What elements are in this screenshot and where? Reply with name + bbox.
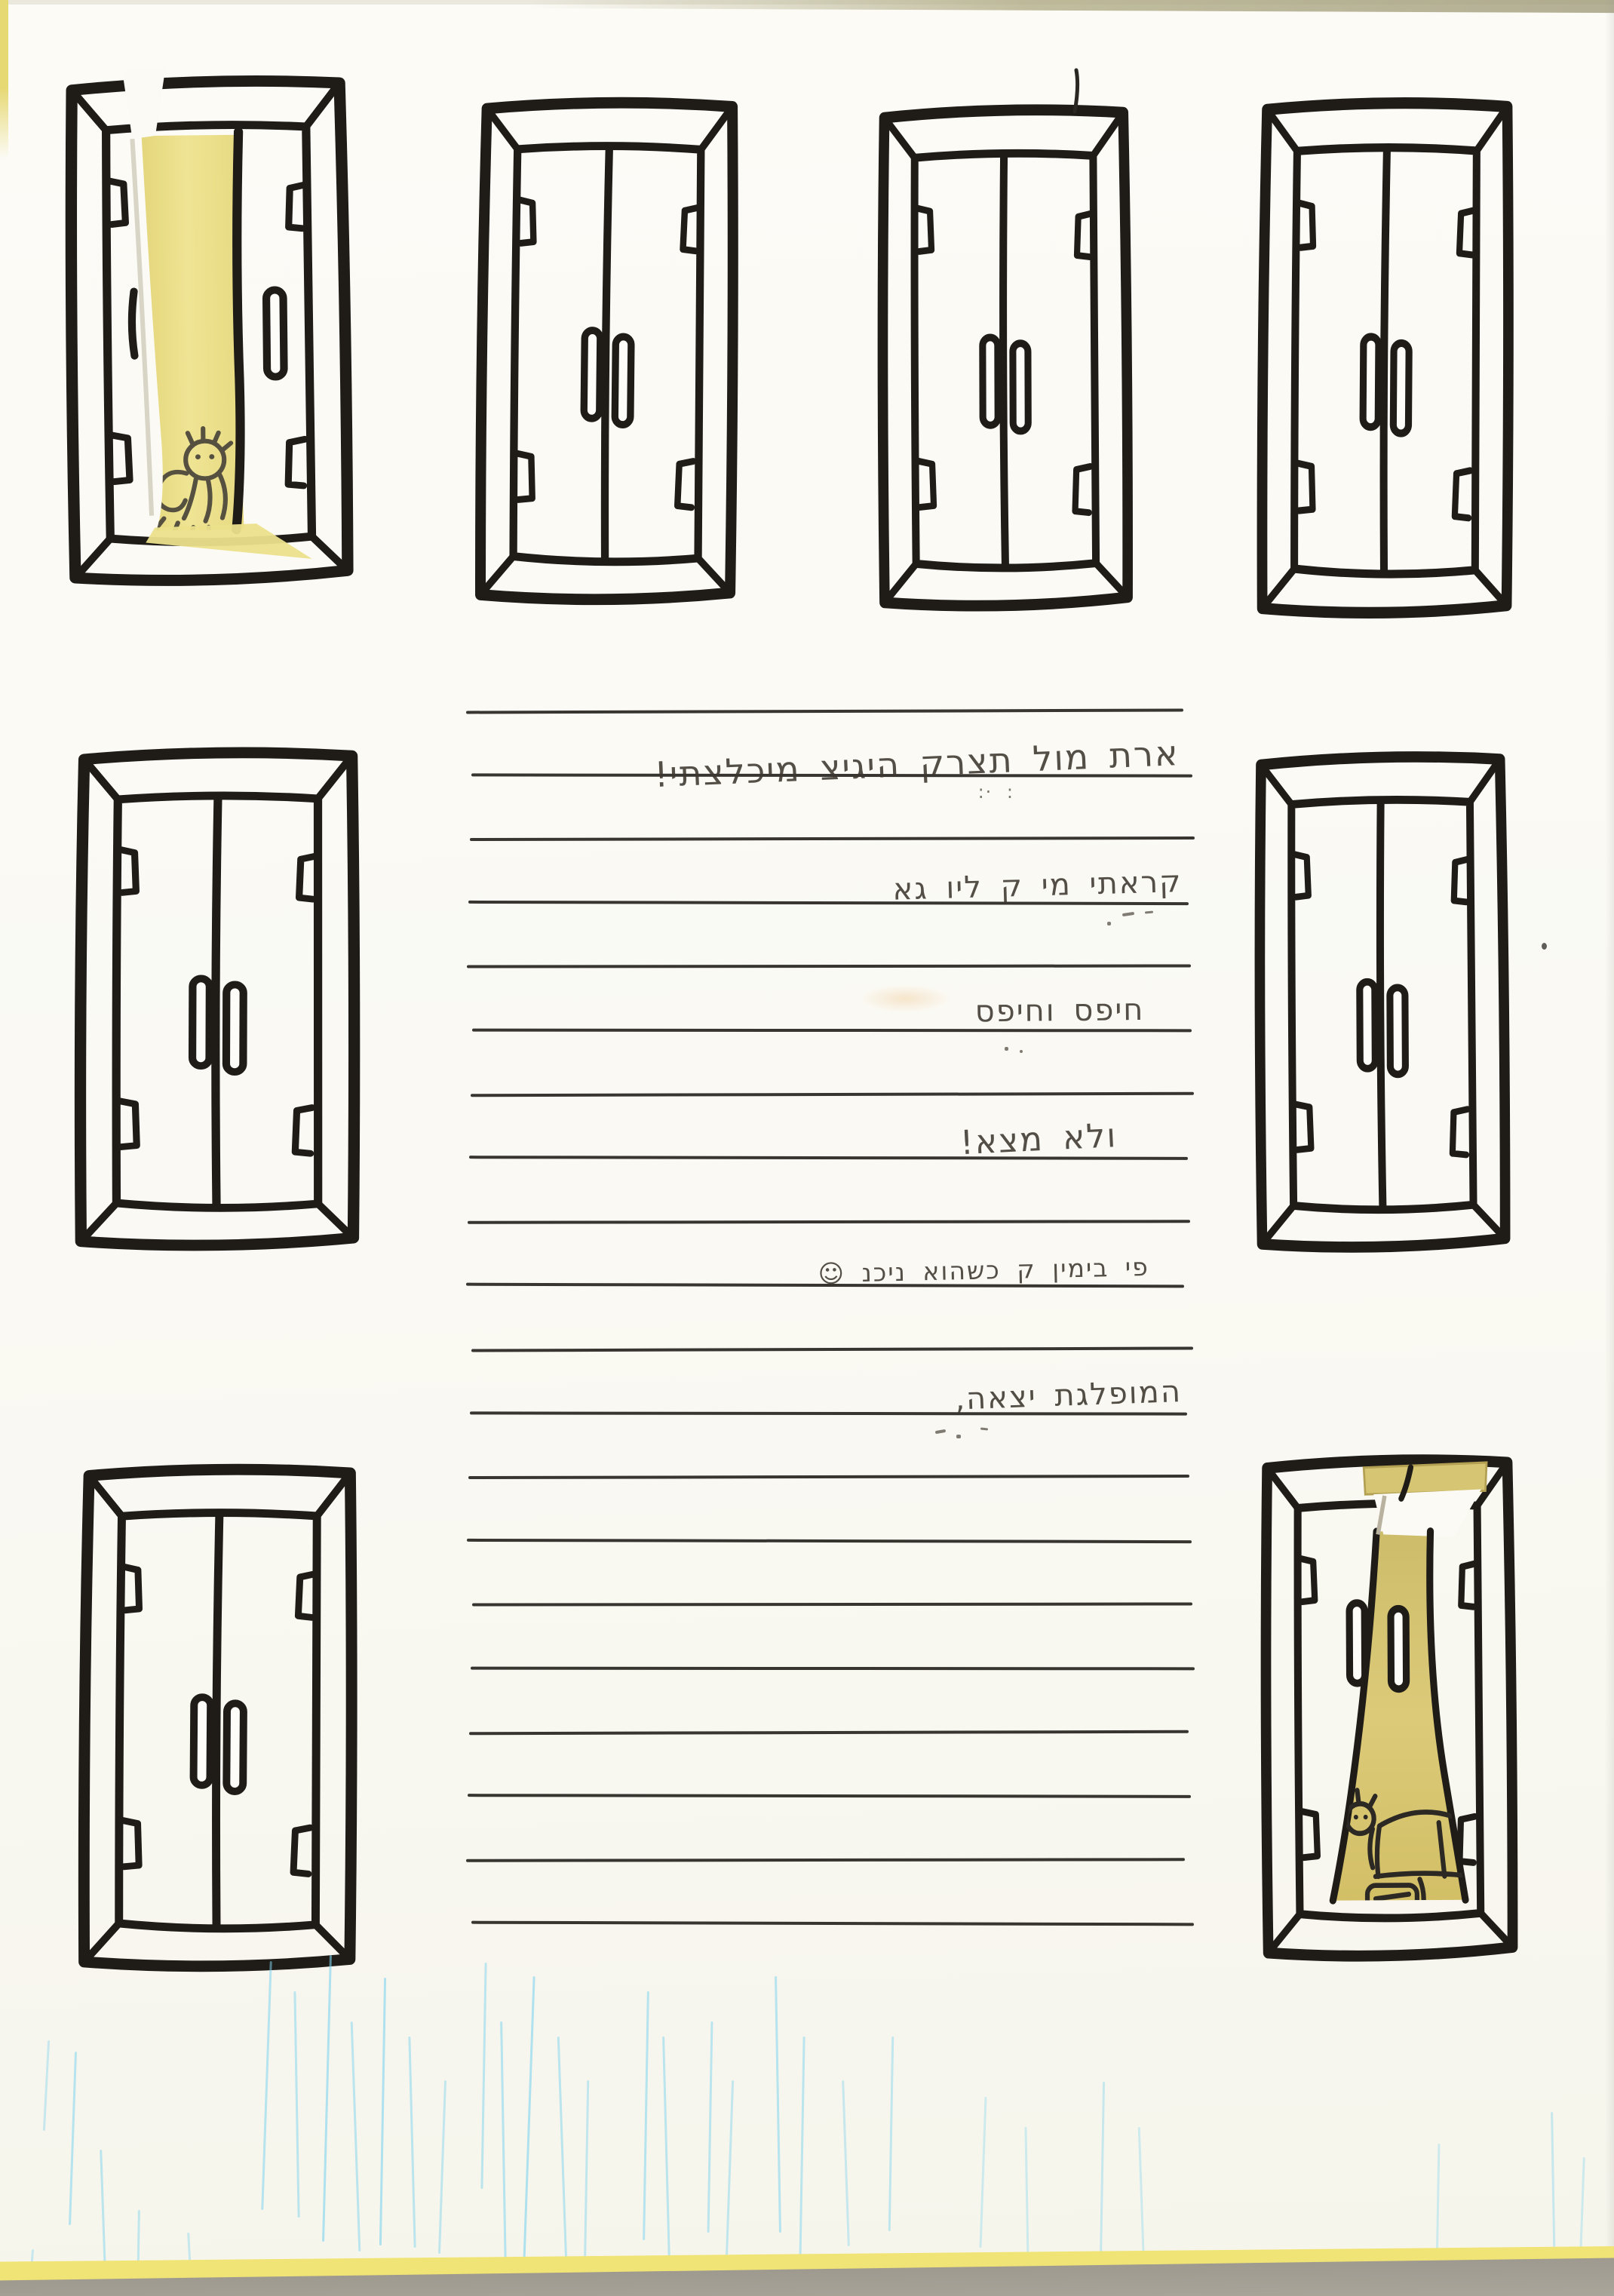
pencil-mark <box>935 1429 946 1434</box>
ruled-line <box>471 1921 1194 1926</box>
grass-crayon-stroke <box>557 2037 567 2263</box>
door-middle-left-closed <box>63 737 372 1258</box>
ruled-line <box>472 1029 1192 1033</box>
ink-dot <box>1542 943 1547 950</box>
pencil-mark <box>1145 911 1153 914</box>
scan-edge-shadow <box>1605 0 1614 2296</box>
grass-crayon-stroke <box>643 1991 649 2240</box>
door-top-third-closed <box>867 94 1143 619</box>
pencil-mark <box>1005 1047 1008 1051</box>
grass-crayon-stroke <box>1024 2127 1029 2261</box>
grass-crayon-stroke <box>888 2037 894 2231</box>
ruled-line <box>471 1667 1195 1671</box>
door-bottom-right-open-center <box>1249 1444 1528 1969</box>
door-top-right-closed <box>1246 87 1526 628</box>
orange-smudge <box>860 985 950 1012</box>
grass-crayon-stroke <box>69 2052 77 2225</box>
ruled-line <box>468 1220 1190 1224</box>
ruled-line <box>467 1539 1192 1543</box>
door-top-left-open-left <box>51 65 364 594</box>
backing-sheet-top-band <box>528 0 1614 13</box>
grass-crayon-stroke <box>584 2080 590 2275</box>
ruled-line <box>467 965 1191 968</box>
grass-crayon-stroke <box>707 2021 713 2233</box>
grass-crayon-stroke <box>842 2080 850 2246</box>
grass-crayon-stroke <box>500 2021 507 2270</box>
grass-crayon-stroke <box>408 2037 416 2248</box>
grass-crayon-stroke <box>980 2097 987 2248</box>
ruled-line <box>466 709 1183 714</box>
handwritten-text: ארת מול תצרק היגיצ מיכלצתי! <box>654 732 1180 795</box>
grass-crayon-stroke <box>379 1978 386 2245</box>
grass-crayon-stroke <box>1138 2127 1146 2269</box>
grass-crayon-stroke <box>322 1955 332 2242</box>
handwritten-text: פי בימין ק כשהוא ניכנ ☺ <box>818 1252 1149 1288</box>
grass-crayon-stroke <box>351 2021 361 2251</box>
pencil-mark <box>1107 922 1111 925</box>
ruled-line <box>471 1346 1193 1352</box>
grass-crayon-stroke <box>438 2080 446 2254</box>
pencil-mark <box>956 1435 961 1438</box>
door-middle-right-closed <box>1243 741 1520 1260</box>
grass-crayon-stroke <box>43 2040 50 2131</box>
pencil-mark <box>980 1427 988 1430</box>
scanned-worksheet-page: ארת מול תצרק היגיצ מיכלצתי!: ·:קראתי מי … <box>0 0 1614 2296</box>
ruled-line <box>468 1794 1191 1798</box>
grass-crayon-stroke <box>523 1976 535 2263</box>
grass-crayon-stroke <box>293 1991 299 2218</box>
pencil-mark <box>1122 912 1134 916</box>
handwritten-text: : ·: <box>978 781 1014 803</box>
grass-crayon-stroke <box>100 2150 106 2270</box>
pencil-mark <box>1020 1050 1023 1053</box>
grass-crayon-stroke <box>775 1976 781 2233</box>
grass-crayon-stroke <box>480 1963 486 2189</box>
handwritten-text: קראתי מי ק ליו גא <box>892 864 1183 907</box>
backing-sheet-left-sliver <box>0 0 8 158</box>
ruled-line <box>470 836 1195 841</box>
door-bottom-left-closed <box>66 1453 370 1981</box>
door-top-second-closed <box>463 86 750 614</box>
ruled-line <box>469 1730 1189 1734</box>
handwritten-text: חיפס וחיפס <box>975 993 1145 1029</box>
stray-pen-mark <box>1071 68 1083 115</box>
ruled-line <box>472 1603 1192 1607</box>
grass-crayon-stroke <box>662 2037 670 2263</box>
grass-crayon-stroke <box>261 1961 272 2210</box>
grass-crayon-stroke <box>726 2080 734 2260</box>
ruled-line <box>466 1858 1185 1862</box>
ruled-line <box>468 1475 1189 1479</box>
handwritten-text: ולא מצא! <box>959 1116 1118 1162</box>
ruled-line <box>471 1091 1194 1097</box>
grass-crayon-stroke <box>799 2037 805 2263</box>
grass-crayon-stroke <box>1100 2082 1105 2261</box>
handwritten-text: המופלגת יצאה, <box>955 1374 1183 1417</box>
